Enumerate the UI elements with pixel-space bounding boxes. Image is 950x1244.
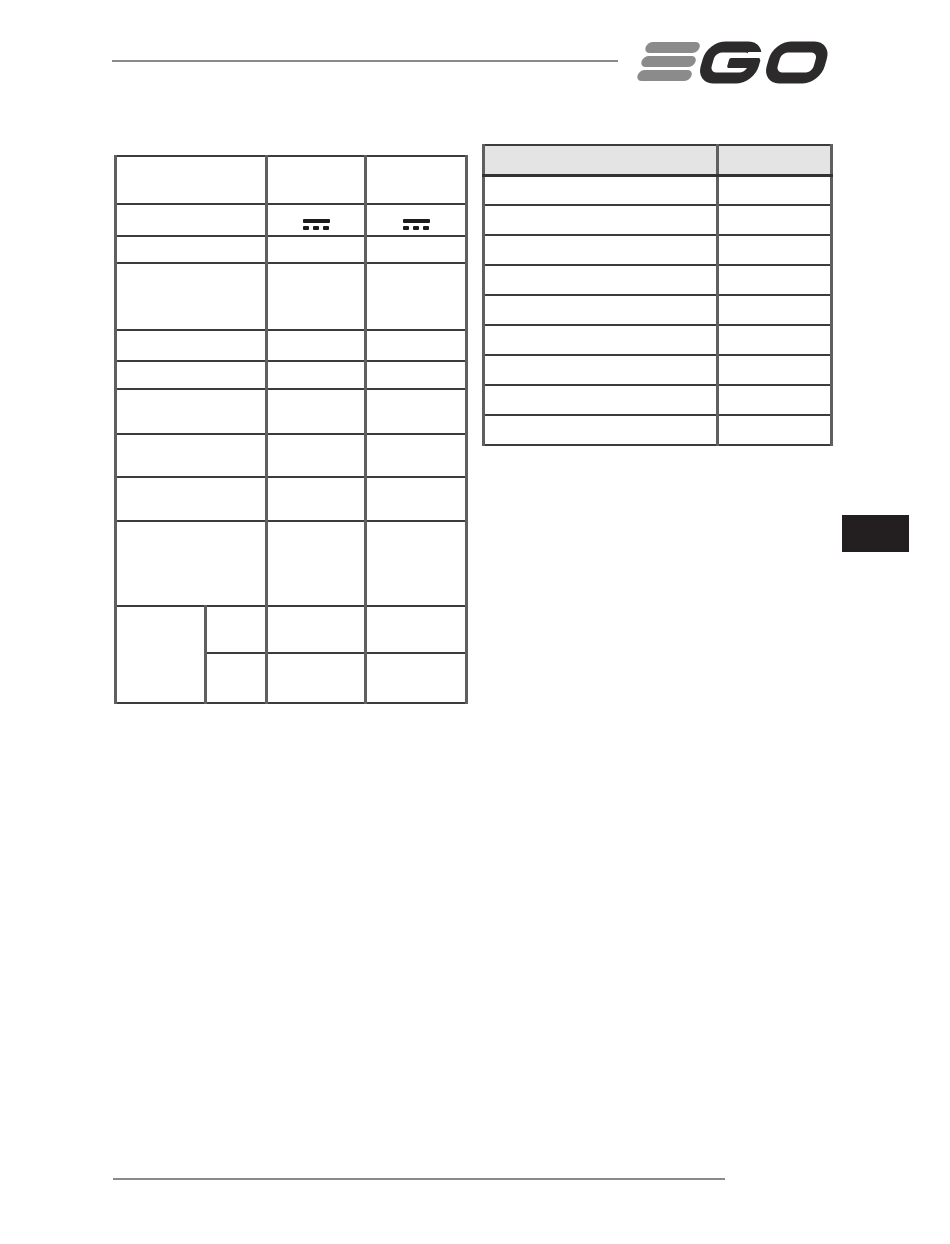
parts-table-cell [484, 385, 718, 415]
spec-table-cell [267, 263, 366, 330]
spec-table-cell [366, 477, 467, 521]
parts-table-cell [718, 265, 832, 295]
spec-table-cell [366, 521, 467, 606]
spec-table-cell [116, 434, 267, 477]
parts-table-cell [718, 175, 832, 205]
parts-table-cell [484, 175, 718, 205]
spec-table-row [116, 204, 467, 236]
parts-table-row [484, 265, 832, 295]
spec-table-cell [116, 263, 267, 330]
right-table [482, 144, 833, 446]
parts-table-row [484, 205, 832, 235]
parts-table-cell [718, 325, 832, 355]
parts-table-cell [718, 235, 832, 265]
header-rule [112, 60, 618, 62]
parts-table-cell [718, 355, 832, 385]
spec-table-cell [267, 521, 366, 606]
footer-rule [113, 1178, 725, 1180]
parts-table-cell [484, 355, 718, 385]
spec-table-row [116, 361, 467, 389]
spec-table-cell [116, 156, 267, 204]
specifications-table-container [114, 155, 468, 704]
parts-table-cell [718, 295, 832, 325]
spec-table-cell [267, 236, 366, 263]
spec-table-cell [116, 477, 267, 521]
parts-table-cell [484, 325, 718, 355]
spec-table-cell [267, 606, 366, 653]
spec-table-cell-dc [267, 204, 366, 236]
logo-e-bars-icon [636, 42, 701, 81]
spec-table-cell [116, 330, 267, 361]
parts-table-cell [718, 205, 832, 235]
spec-table-body [116, 156, 467, 703]
parts-table-row [484, 235, 832, 265]
spec-table-cell [267, 653, 366, 703]
parts-table-cell [484, 295, 718, 325]
spec-table-cell-dc [366, 204, 467, 236]
spec-table-cell [366, 263, 467, 330]
spec-table-cell [206, 606, 267, 653]
parts-table-cell [484, 265, 718, 295]
spec-table-cell [116, 521, 267, 606]
spec-table-cell [366, 236, 467, 263]
spec-table-cell [267, 434, 366, 477]
parts-table-row [484, 415, 832, 445]
parts-table-row [484, 295, 832, 325]
spec-table-cell [366, 653, 467, 703]
ego-logo [632, 39, 832, 86]
right-table-container [482, 144, 833, 446]
parts-table-cell [484, 235, 718, 265]
spec-table-cell [267, 156, 366, 204]
spec-table-cell [267, 361, 366, 389]
spec-table-cell [366, 330, 467, 361]
spec-table-row [116, 330, 467, 361]
spec-table-row [116, 434, 467, 477]
spec-table-cell [206, 653, 267, 703]
spec-table-cell [116, 606, 206, 703]
spec-table-cell [267, 330, 366, 361]
parts-table-cell [718, 385, 832, 415]
spec-table-cell [366, 156, 467, 204]
spec-table-cell [366, 389, 467, 434]
parts-table-cell [484, 205, 718, 235]
parts-table-header-row [484, 145, 832, 175]
dc-voltage-icon [403, 219, 430, 230]
section-index-tab [842, 515, 909, 552]
spec-table-row [116, 606, 467, 653]
spec-table-row [116, 521, 467, 606]
spec-table-row [116, 389, 467, 434]
logo-go-letters [703, 47, 825, 78]
spec-table-row [116, 263, 467, 330]
page [0, 0, 950, 1244]
parts-table-row [484, 355, 832, 385]
spec-table-cell [116, 236, 267, 263]
parts-table-cell [718, 415, 832, 445]
spec-table-row [116, 156, 467, 204]
dc-voltage-icon [303, 219, 330, 230]
spec-table-cell [366, 606, 467, 653]
spec-table-cell [116, 361, 267, 389]
parts-table-body [484, 145, 832, 445]
parts-table-row [484, 385, 832, 415]
spec-table-row [116, 236, 467, 263]
parts-table-row [484, 175, 832, 205]
spec-table-cell [116, 389, 267, 434]
spec-table-cell [366, 434, 467, 477]
spec-table-cell [267, 389, 366, 434]
specifications-table [114, 155, 468, 704]
spec-table-cell [267, 477, 366, 521]
parts-table-row [484, 325, 832, 355]
parts-table-header-cell [718, 145, 832, 175]
spec-table-cell [116, 204, 267, 236]
parts-table-header-cell [484, 145, 718, 175]
parts-table-cell [484, 415, 718, 445]
spec-table-cell [366, 361, 467, 389]
spec-table-row [116, 477, 467, 521]
